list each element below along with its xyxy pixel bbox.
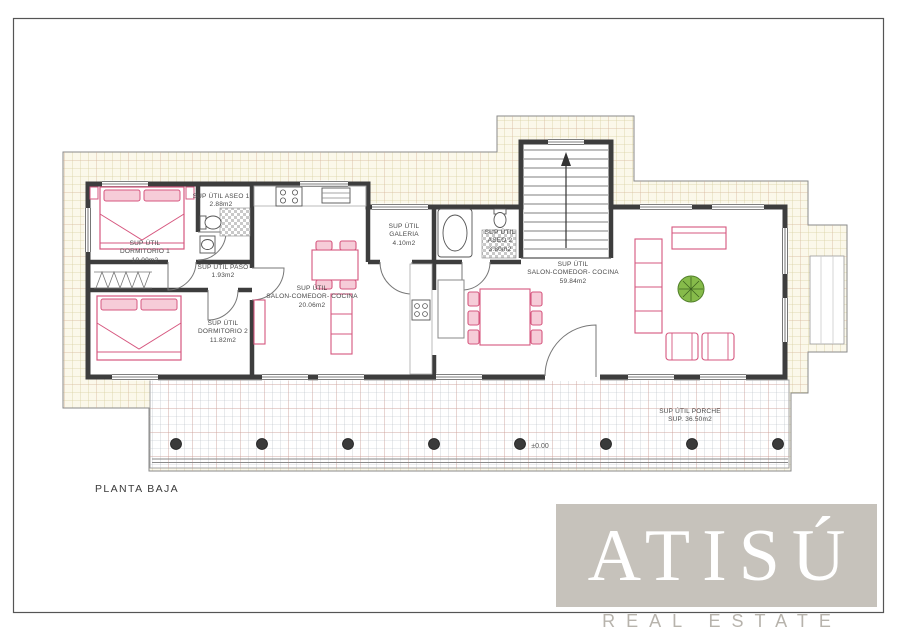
logo-box: ATISÚ xyxy=(556,504,877,607)
room-label-aseo2: SUP ÚTIL ASEO 2 3.80m2 xyxy=(485,229,516,254)
room-label-aseo1: SUP ÚTIL ASEO 1 2.88m2 xyxy=(193,193,250,210)
label-line: SUP ÚTIL xyxy=(198,320,248,328)
label-line: SUP ÚTIL PORCHE xyxy=(659,408,721,416)
label-line: SUP ÚTIL xyxy=(266,285,358,293)
room-label-galeria: SUP ÚTIL GALERIA 4.10m2 xyxy=(389,223,420,248)
plant-icon xyxy=(678,276,704,302)
label-line: 20.06m2 xyxy=(266,302,358,310)
label-line: DORMITORIO 1 xyxy=(120,248,170,256)
label-line: 10.00m2 xyxy=(120,257,170,265)
label-line: SUP ÚTIL PASO xyxy=(198,264,249,272)
label-line: SUP ÚTIL xyxy=(485,229,516,237)
label-line: 1.93m2 xyxy=(198,272,249,280)
label-line: ASEO 2 xyxy=(485,237,516,245)
label-line: 3.80m2 xyxy=(485,246,516,254)
logo-tagline: REAL ESTATE xyxy=(556,611,877,632)
east-bay-window xyxy=(810,256,844,344)
armchair-2 xyxy=(702,333,734,360)
label-line: SUP ÚTIL xyxy=(527,261,619,269)
label-line: SALON-COMEDOR- COCINA xyxy=(266,293,358,301)
bed-dormitorio2 xyxy=(97,296,181,360)
drawing-sheet: SUP ÚTIL DORMITORIO 1 10.00m2 SUP ÚTIL A… xyxy=(0,0,900,635)
room-label-paso: SUP ÚTIL PASO 1.93m2 xyxy=(198,264,249,281)
room-label-salon-small: SUP ÚTIL SALON-COMEDOR- COCINA 20.06m2 xyxy=(266,285,358,310)
room-label-porche: SUP ÚTIL PORCHE SUP. 36.50m2 xyxy=(659,408,721,425)
label-line: 4.10m2 xyxy=(389,240,420,248)
room-label-salon-main: SUP ÚTIL SALON-COMEDOR- COCINA 59.84m2 xyxy=(527,261,619,286)
label-line: GALERIA xyxy=(389,231,420,239)
label-line: 11.82m2 xyxy=(198,337,248,345)
tv-unit xyxy=(254,300,265,344)
room-label-dormitorio1: SUP ÚTIL DORMITORIO 1 10.00m2 xyxy=(120,240,170,265)
label-line: SALON-COMEDOR- COCINA xyxy=(527,269,619,277)
label-line: SUP ÚTIL xyxy=(389,223,420,231)
stove-icon xyxy=(276,187,302,206)
plan-title: PLANTA BAJA xyxy=(95,483,179,495)
logo-text: ATISÚ xyxy=(576,519,858,593)
room-label-dormitorio2: SUP ÚTIL DORMITORIO 2 11.82m2 xyxy=(198,320,248,345)
dining-table-main xyxy=(480,289,530,345)
label-line: SUP ÚTIL xyxy=(120,240,170,248)
label-line: DORMITORIO 2 xyxy=(198,328,248,336)
label-line: 2.88m2 xyxy=(193,201,250,209)
sink-icon xyxy=(322,188,350,203)
sideboard xyxy=(672,227,726,249)
label-line: 59.84m2 xyxy=(527,278,619,286)
level-mark: ±0.00 xyxy=(531,443,548,450)
sofa-main xyxy=(635,239,662,333)
stove2-icon xyxy=(412,300,430,320)
label-line: SUP ÚTIL ASEO 1 xyxy=(193,193,250,201)
kitchen-island xyxy=(438,280,464,338)
label-line: SUP. 36.50m2 xyxy=(659,416,721,424)
armchair-1 xyxy=(666,333,698,360)
dining-table-small xyxy=(312,250,358,280)
